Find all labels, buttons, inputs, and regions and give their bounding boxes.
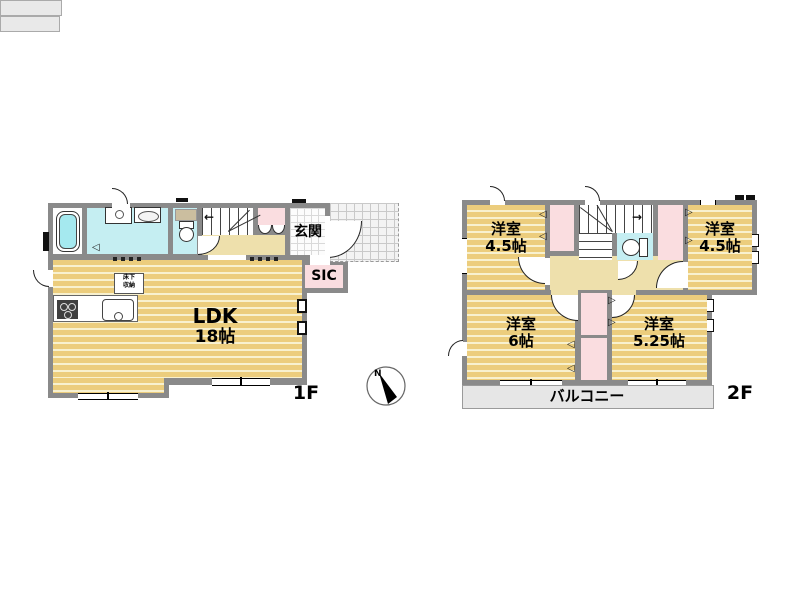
room-ne-size: 4.5帖 (680, 238, 760, 255)
toilet-bowl (179, 227, 194, 242)
window-ldk-east (297, 321, 307, 335)
sliding-door-mark (250, 257, 278, 261)
closet-bifold-doors (258, 225, 285, 234)
terrace-step (0, 16, 60, 32)
stove-burner (64, 311, 72, 319)
floor-plan-canvas: ← 床下 収納 (0, 0, 800, 600)
sliding-door-mark (113, 257, 141, 261)
terrace-step (0, 0, 62, 16)
door-opening (545, 258, 550, 285)
folding-door-mark: ◁ (92, 243, 100, 253)
toilet-icon-1f (179, 221, 192, 241)
window-ldk-south-right (212, 378, 270, 386)
underfloor-storage: 床下 収納 (114, 273, 144, 294)
room-se-name: 洋室 (609, 316, 709, 333)
door-arc-washroom-exterior (112, 188, 128, 204)
sink-icon (102, 299, 134, 321)
closet-2f-left (550, 205, 574, 251)
stairs-arrow-icon: ← (204, 211, 214, 223)
toilet-shelf (175, 209, 197, 221)
room-label-2f-ne: 洋室 4.5帖 (680, 221, 760, 256)
floor-label-1f: 1F (284, 383, 328, 405)
washing-machine-icon (134, 207, 161, 223)
sink-faucet (114, 312, 123, 321)
window-marker (292, 199, 306, 203)
door-arc-ldk-side (33, 270, 49, 287)
stove-burner (60, 303, 68, 311)
window-swing-arc (448, 340, 463, 356)
toilet-tank (639, 238, 648, 257)
floor-plan-1f: ← 床下 収納 (0, 0, 800, 32)
room-label-genkan: 玄関 (287, 224, 329, 240)
ldk-size: 18帖 (150, 328, 280, 348)
kitchen-counter (53, 295, 138, 322)
room-sw-size: 6帖 (471, 333, 571, 350)
underfloor-storage-label-1: 床下 (115, 274, 143, 282)
bathtub-water (59, 214, 77, 249)
room-label-sic: SIC (303, 268, 345, 284)
compass-icon: N (361, 360, 409, 408)
window-ldk-south-left (78, 393, 138, 400)
stove-icon (57, 300, 78, 319)
ldk-name: LDK (150, 305, 280, 328)
sic-door-opening (310, 255, 330, 265)
window-marker (735, 195, 744, 200)
folding-door-mark: ◁ (567, 364, 575, 374)
room-se-size: 5.25帖 (609, 333, 709, 350)
room-label-2f-sw: 洋室 6帖 (471, 316, 571, 351)
underfloor-storage-label-2: 収納 (115, 282, 143, 290)
room-label-2f-se: 洋室 5.25帖 (609, 316, 709, 351)
stove-burner (68, 303, 76, 311)
compass-label: N (374, 369, 382, 379)
room-label-ldk: LDK 18帖 (150, 305, 280, 348)
window-swing-arc (490, 186, 505, 201)
folding-door-mark: ▷ (685, 208, 693, 218)
washbasin-icon (105, 207, 132, 224)
window-ldk-east (297, 299, 307, 313)
stairs-arrow-icon: → (632, 211, 642, 223)
folding-door-mark: ◁ (539, 210, 547, 220)
bathtub-icon (56, 211, 80, 252)
washbasin-bowl (115, 210, 124, 219)
window-marker (707, 299, 714, 312)
folding-door-mark: ▷ (608, 296, 616, 306)
window-swing-arc (585, 186, 600, 201)
closet-1f (258, 208, 285, 225)
window-tick (107, 392, 109, 400)
window-marker (176, 198, 188, 202)
balcony-label: バルコニー (462, 388, 712, 405)
room-ne-name: 洋室 (680, 221, 760, 238)
window-marker (746, 195, 755, 200)
stairs-2f-winder (579, 233, 612, 260)
room-ldk-extension (53, 378, 164, 393)
washing-machine-drum (138, 211, 159, 222)
room-sw-name: 洋室 (471, 316, 571, 333)
closet-2f-mid-top (581, 293, 607, 335)
toilet-bowl (622, 239, 640, 256)
door-opening (683, 262, 688, 288)
window-tick (240, 377, 242, 386)
window-marker (43, 232, 49, 251)
room-nw-name: 洋室 (462, 221, 550, 238)
window-opening (700, 200, 716, 205)
room-label-2f-nw: 洋室 4.5帖 (462, 221, 550, 256)
room-nw-size: 4.5帖 (462, 238, 550, 255)
toilet-icon-2f (622, 238, 648, 255)
hall-ldk-opening (208, 255, 246, 260)
closet-2f-mid-bottom (581, 338, 607, 380)
floor-label-2f: 2F (718, 383, 762, 405)
